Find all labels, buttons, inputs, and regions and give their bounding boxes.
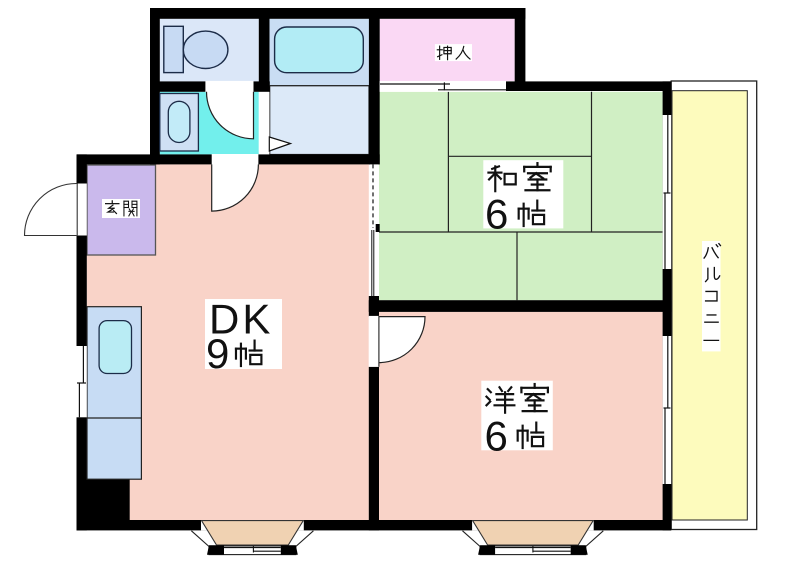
svg-text:6: 6: [485, 190, 508, 237]
svg-text:9: 9: [206, 330, 229, 377]
svg-text:6: 6: [485, 412, 508, 459]
